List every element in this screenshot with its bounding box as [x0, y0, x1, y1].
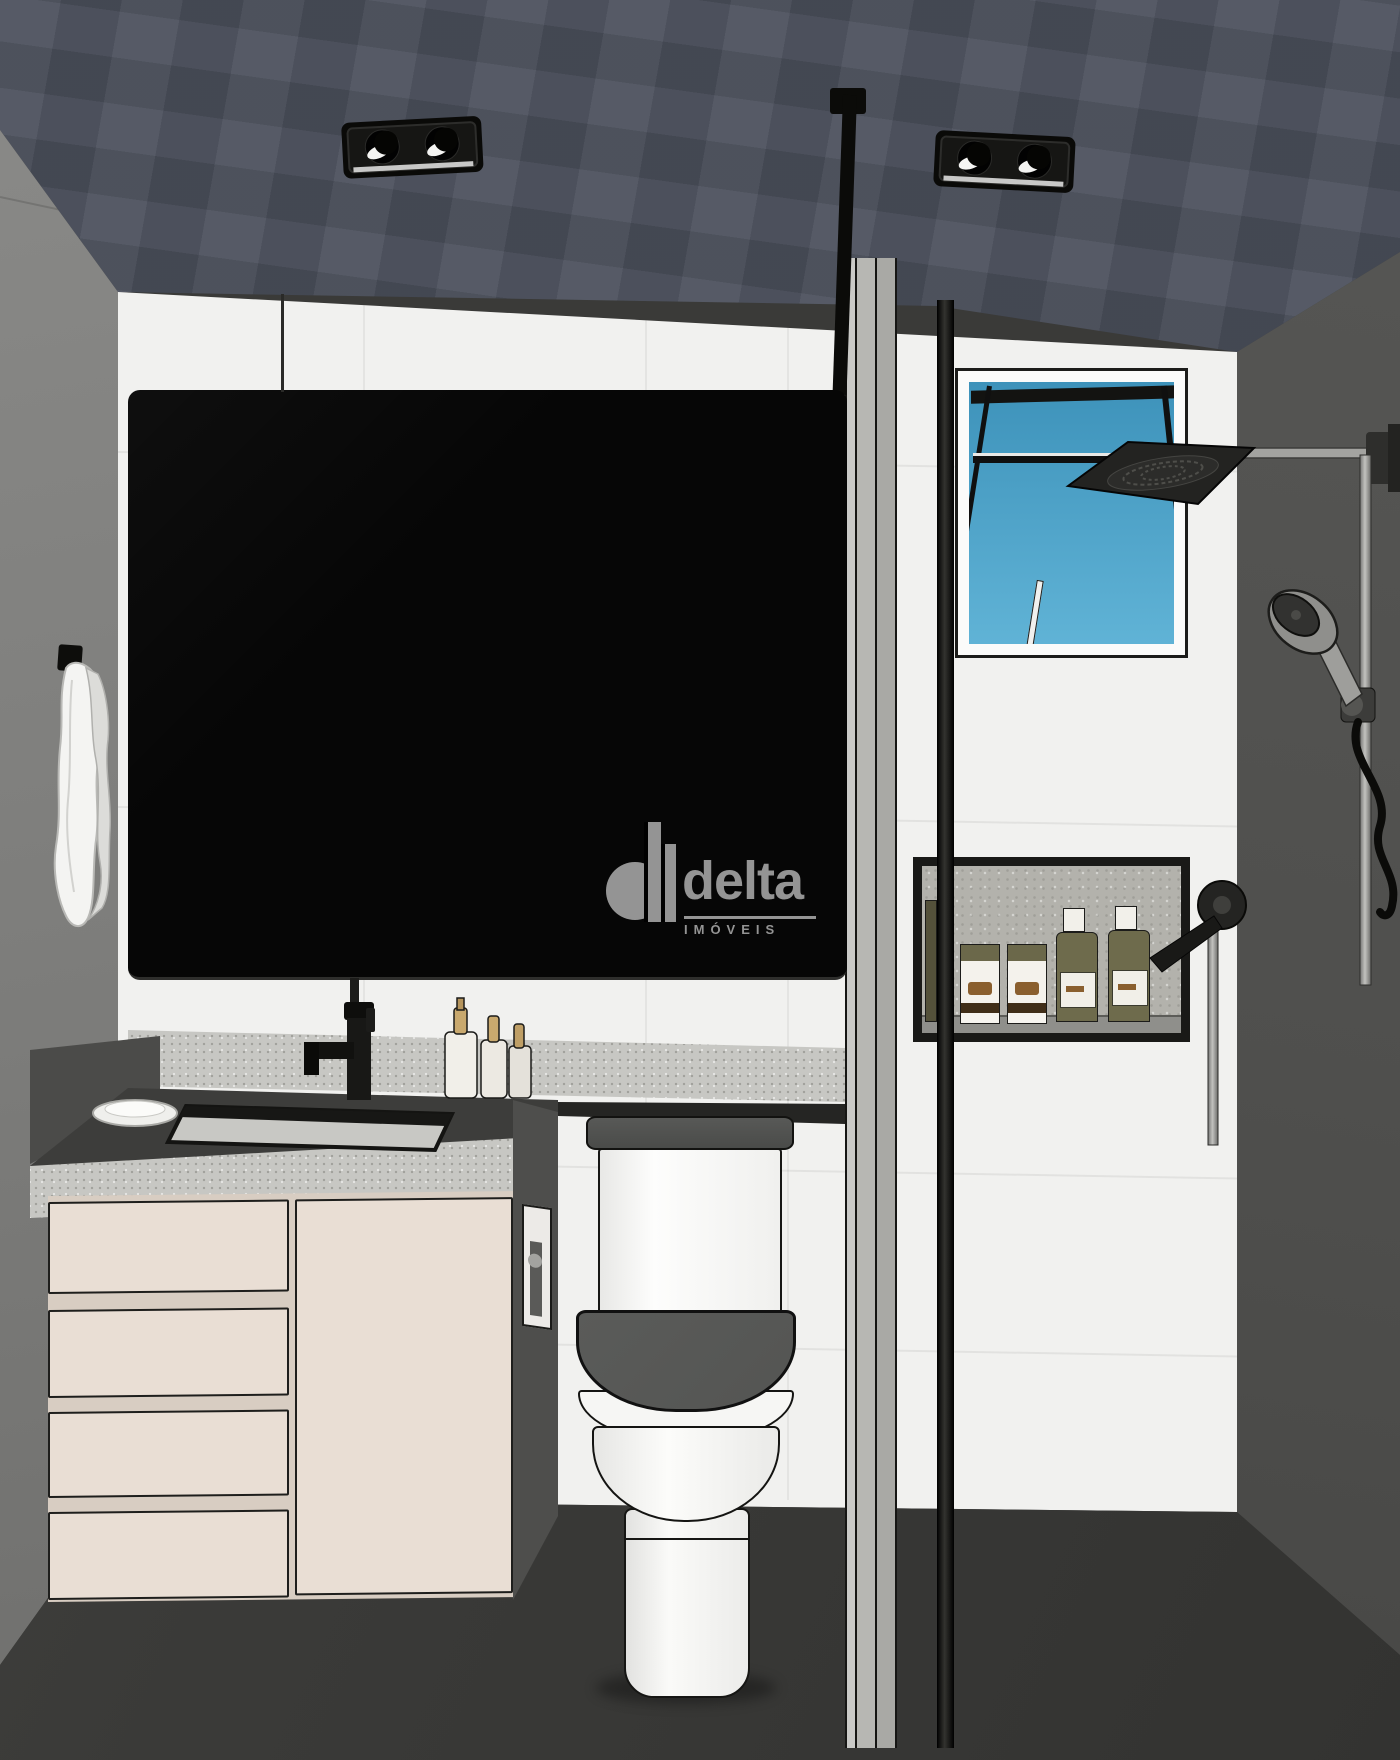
glass-frame-pole — [937, 300, 954, 1748]
vanity-drawer — [48, 1509, 289, 1600]
window-stay-rod — [1025, 580, 1043, 644]
niche-bottle-sliver — [925, 900, 937, 1022]
vanity-door — [295, 1197, 513, 1595]
toilet-pedestal — [624, 1508, 750, 1698]
tube-label — [1015, 982, 1039, 995]
vanity-cabinet — [48, 1191, 513, 1602]
side-niche-object — [530, 1241, 542, 1317]
watermark-tagline: IMÓVEIS — [684, 916, 816, 937]
mirror-hanger-wire — [281, 294, 284, 392]
window-pane-right-edge — [1161, 386, 1174, 637]
toilet-tank — [598, 1148, 782, 1316]
window-pane-left-edge — [969, 386, 992, 632]
bottle-label-mark — [1066, 986, 1084, 992]
window-pane-bottom-rail — [973, 456, 1174, 463]
watermark-building-bar — [644, 822, 661, 922]
bathroom-render: delta IMÓVEIS — [0, 0, 1400, 1760]
window-sky — [969, 382, 1174, 644]
vanity-drawer — [48, 1307, 289, 1398]
bottle-cap — [1063, 908, 1085, 932]
tube-label — [968, 982, 992, 995]
toilet-pedestal-seam — [626, 1538, 748, 1540]
vanity-side-niche — [522, 1204, 552, 1330]
window-pane-top-rail — [971, 385, 1174, 403]
bottle-cap — [1115, 906, 1137, 930]
watermark-brand: delta — [682, 854, 803, 908]
toilet-tank-lid — [586, 1116, 794, 1150]
watermark-building-bar — [661, 844, 676, 922]
vanity-drawer — [48, 1199, 289, 1294]
bottle-label-mark — [1118, 984, 1136, 990]
glass-panel-edge — [845, 258, 897, 1748]
watermark: delta IMÓVEIS — [598, 820, 868, 940]
awning-window — [955, 368, 1188, 658]
vanity-drawer — [48, 1409, 289, 1498]
